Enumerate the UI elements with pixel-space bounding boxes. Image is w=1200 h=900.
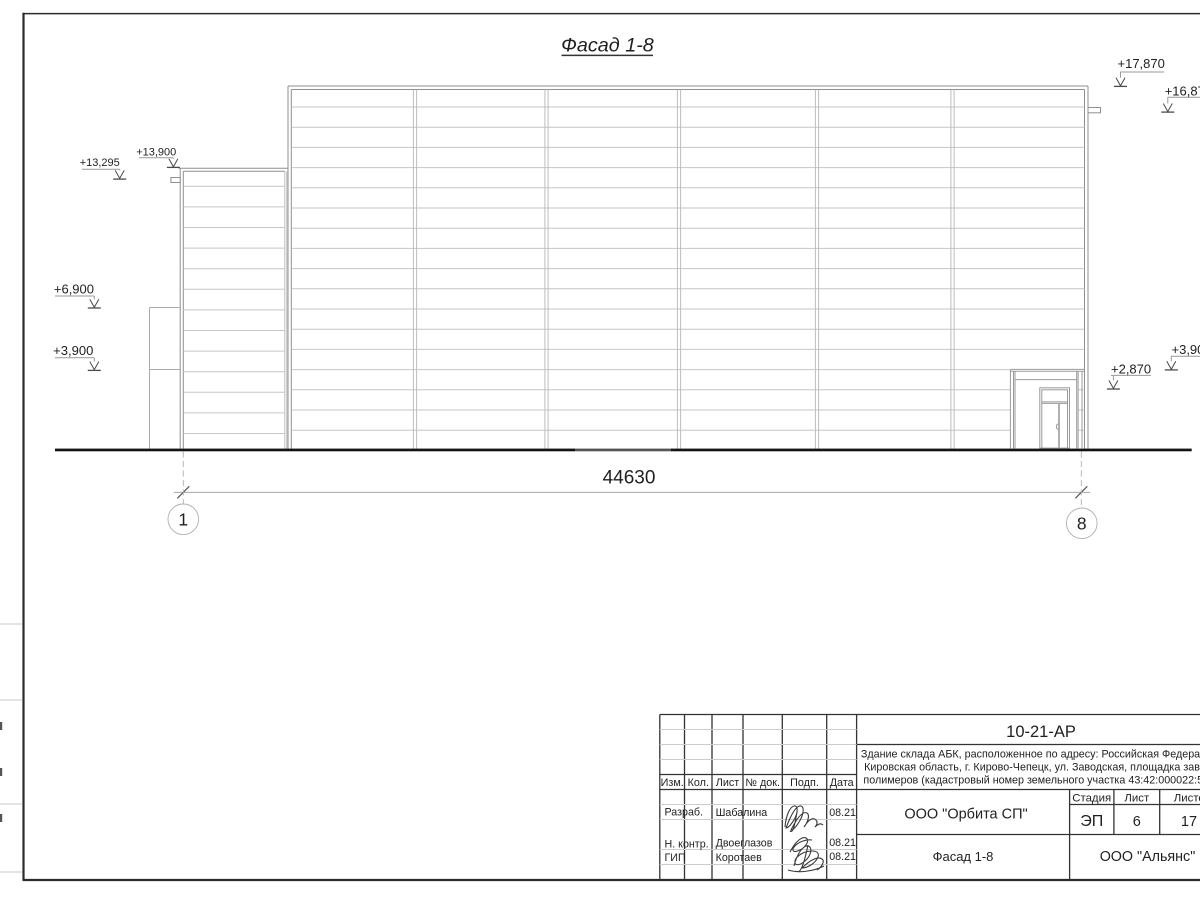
svg-text:+16,870: +16,870 (1165, 83, 1200, 98)
svg-text:+13,295: +13,295 (80, 157, 120, 169)
svg-text:Изм.: Изм. (661, 777, 684, 789)
svg-text:Кировская область, г. Кирово-Ч: Кировская область, г. Кирово-Чепецк, ул.… (864, 762, 1200, 774)
svg-text:ООО "Альянс": ООО "Альянс" (1100, 849, 1196, 865)
svg-text:+6,900: +6,900 (54, 281, 94, 296)
svg-text:№ док.: № док. (745, 777, 780, 789)
svg-text:полимеров (кадастровый номер з: полимеров (кадастровый номер земельного … (863, 775, 1200, 787)
svg-text:1: 1 (178, 510, 188, 530)
svg-text:8: 8 (1077, 514, 1087, 534)
svg-text:08.21: 08.21 (829, 837, 856, 849)
svg-text:44630: 44630 (603, 468, 656, 489)
svg-text:Лист: Лист (716, 777, 740, 789)
svg-text:Дата: Дата (830, 777, 854, 789)
svg-text:Стадия: Стадия (1072, 793, 1111, 805)
svg-text:Шабалина: Шабалина (716, 807, 768, 819)
svg-text:10-21-АР: 10-21-АР (1006, 723, 1076, 741)
svg-text:+3,900: +3,900 (1172, 342, 1200, 357)
svg-text:Разраб.: Разраб. (665, 806, 703, 818)
svg-text:08.21: 08.21 (829, 807, 856, 819)
svg-text:Подп.: Подп. (790, 777, 819, 789)
svg-text:Фасад 1-8: Фасад 1-8 (933, 849, 994, 864)
svg-text:+17,870: +17,870 (1118, 56, 1165, 71)
svg-text:Здание склада АБК, расположенн: Здание склада АБК, расположенное по адре… (861, 749, 1200, 761)
svg-text:+2,870: +2,870 (1111, 361, 1151, 376)
svg-text:Кол.: Кол. (688, 777, 709, 789)
svg-text:6: 6 (1133, 814, 1141, 830)
svg-text:Листов: Листов (1174, 793, 1200, 805)
svg-text:Лист: Лист (1124, 793, 1150, 805)
svg-text:ООО "Орбита СП": ООО "Орбита СП" (904, 807, 1027, 823)
svg-text:Н. контр.: Н. контр. (665, 838, 709, 850)
svg-text:Коротаев: Коротаев (716, 852, 762, 864)
svg-text:ЭП: ЭП (1080, 813, 1103, 830)
svg-text:+13,900: +13,900 (136, 146, 176, 158)
svg-text:ГИП: ГИП (665, 852, 686, 864)
svg-text:+3,900: +3,900 (53, 343, 93, 358)
svg-text:Двоеглазов: Двоеглазов (716, 838, 773, 850)
svg-text:08.21: 08.21 (829, 851, 856, 863)
svg-text:17: 17 (1181, 814, 1197, 830)
svg-text:Фасад 1-8: Фасад 1-8 (561, 34, 654, 56)
